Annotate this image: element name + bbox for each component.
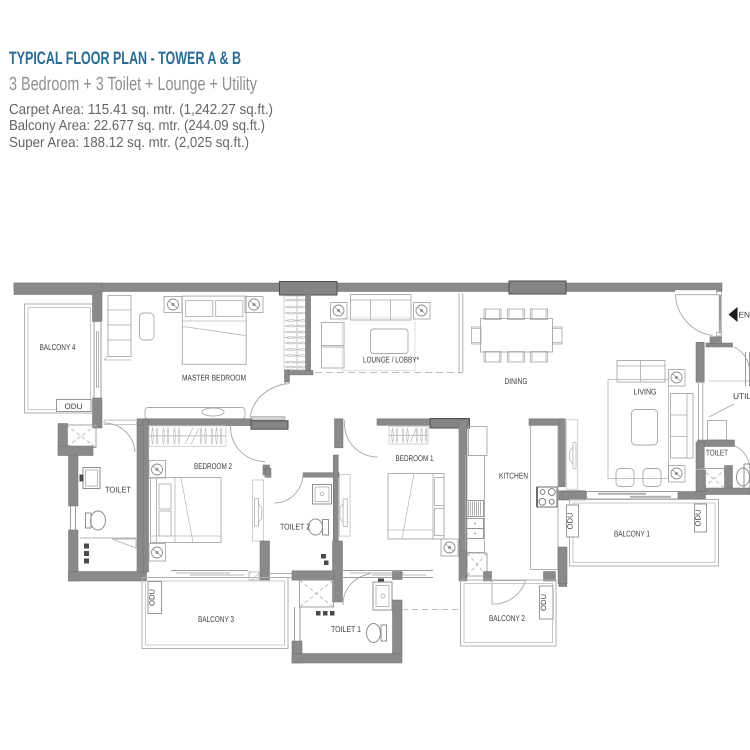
svg-text:TOILET 2: TOILET 2 <box>280 522 310 532</box>
svg-text:BALCONY 4: BALCONY 4 <box>40 342 76 352</box>
svg-text:BALCONY 1: BALCONY 1 <box>614 529 650 539</box>
svg-text:KITCHEN: KITCHEN <box>499 471 528 481</box>
svg-text:Super Area: 188.12 sq. mtr. (2: Super Area: 188.12 sq. mtr. (2,025 sq.ft… <box>9 135 249 151</box>
svg-text:ODU: ODU <box>148 589 157 606</box>
svg-text:MASTER BEDROOM: MASTER BEDROOM <box>182 373 246 383</box>
svg-text:Carpet Area: 115.41 sq. mtr. (: Carpet Area: 115.41 sq. mtr. (1,242.27 s… <box>9 102 273 118</box>
svg-text:TOILET: TOILET <box>105 485 131 495</box>
svg-text:BALCONY 2: BALCONY 2 <box>489 613 525 623</box>
svg-text:TOILET: TOILET <box>706 448 728 458</box>
svg-text:DINING: DINING <box>505 376 528 386</box>
svg-text:BEDROOM 1: BEDROOM 1 <box>396 453 434 463</box>
svg-text:Balcony Area: 22.677 sq. mtr.: Balcony Area: 22.677 sq. mtr. (244.09 sq… <box>9 118 265 134</box>
svg-text:TYPICAL FLOOR PLAN - TOWER A &: TYPICAL FLOOR PLAN - TOWER A & B <box>9 48 241 68</box>
svg-text:ODU: ODU <box>694 510 703 527</box>
svg-text:ODU: ODU <box>566 513 575 530</box>
svg-text:ODU: ODU <box>65 402 83 411</box>
svg-text:UTILITY: UTILITY <box>733 391 750 401</box>
svg-text:LOUNGE / LOBBY*: LOUNGE / LOBBY* <box>363 355 420 365</box>
svg-text:LIVING: LIVING <box>634 387 657 397</box>
svg-text:3 Bedroom + 3 Toilet + Lounge: 3 Bedroom + 3 Toilet + Lounge + Utility <box>9 74 257 95</box>
svg-text:ENTRANCE: ENTRANCE <box>739 311 750 320</box>
svg-text:ODU: ODU <box>539 594 548 611</box>
svg-text:BEDROOM 2: BEDROOM 2 <box>194 461 232 471</box>
svg-text:BALCONY 3: BALCONY 3 <box>198 614 234 624</box>
svg-text:TOILET 1: TOILET 1 <box>331 624 361 634</box>
